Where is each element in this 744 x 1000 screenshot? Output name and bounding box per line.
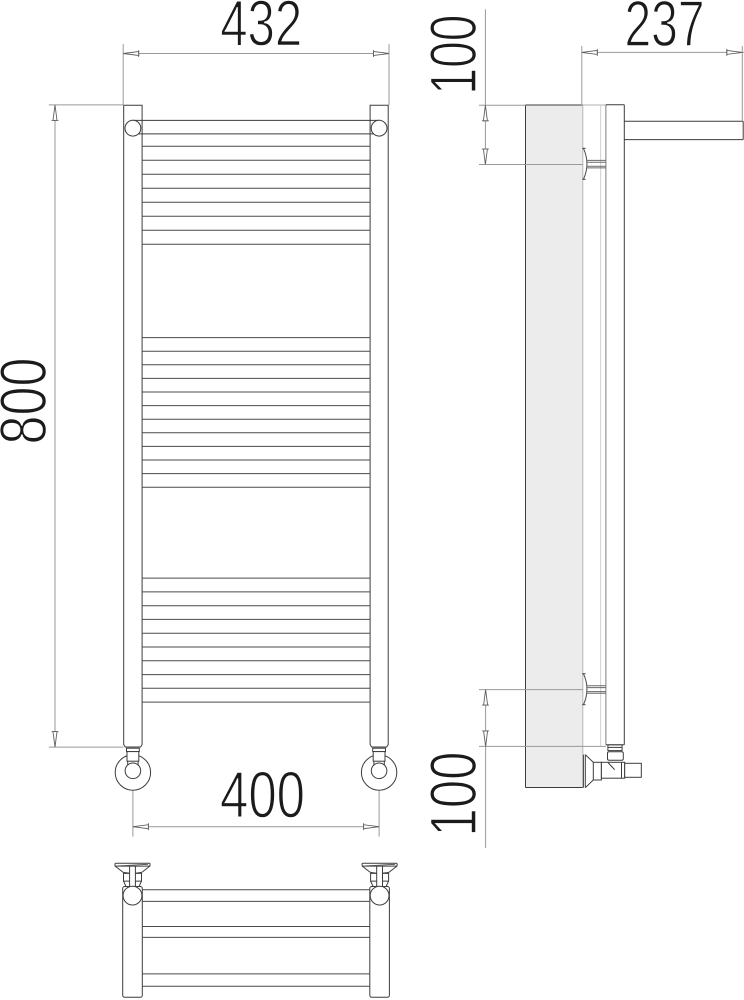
svg-text:100: 100 bbox=[416, 15, 490, 95]
svg-text:800: 800 bbox=[0, 358, 60, 445]
svg-text:100: 100 bbox=[416, 752, 490, 837]
svg-text:400: 400 bbox=[220, 757, 305, 831]
svg-text:237: 237 bbox=[625, 0, 705, 60]
svg-text:432: 432 bbox=[220, 0, 302, 60]
